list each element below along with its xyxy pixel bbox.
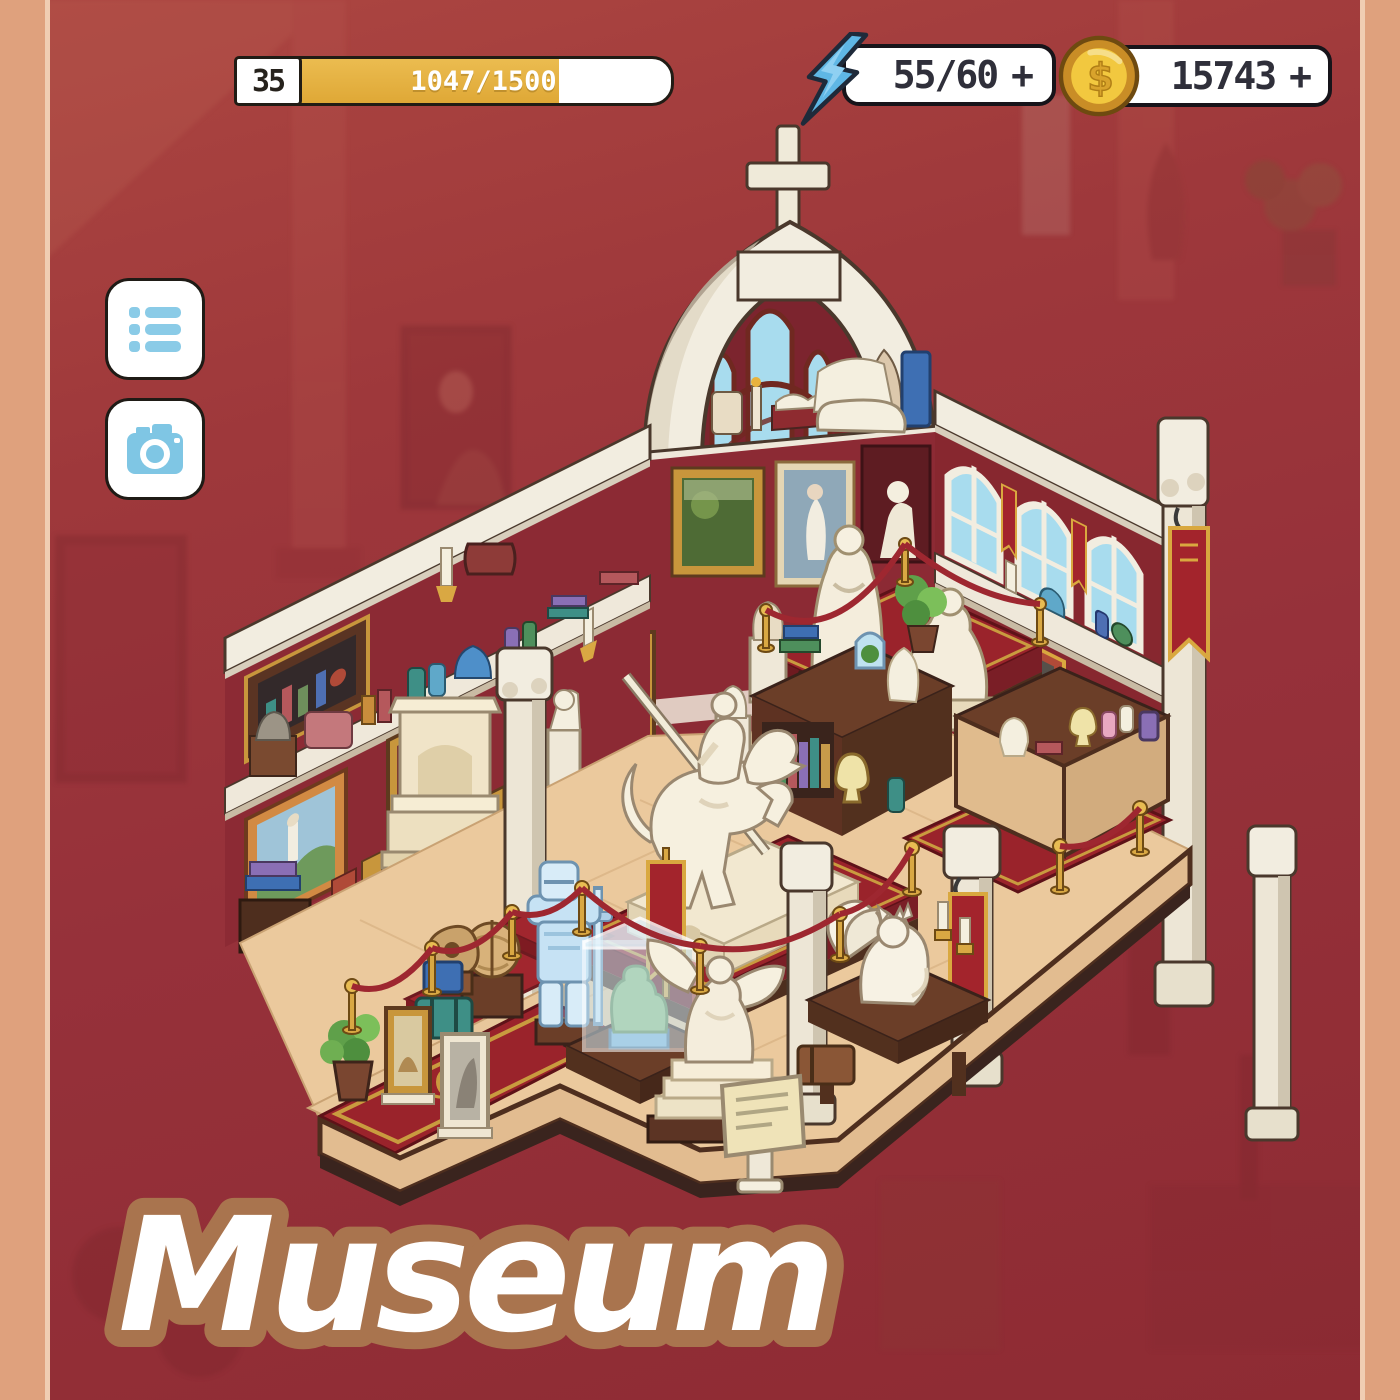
level-badge: 35 <box>234 56 302 106</box>
coin-value: 15743 <box>1171 54 1275 98</box>
alcove-bust <box>862 446 930 562</box>
xp-progress-label: 1047/1500 <box>296 59 671 103</box>
energy-value: 55/60 <box>893 53 997 97</box>
suitcase <box>798 1046 854 1084</box>
game-screen: { "frame": {"border_color": "#DFA17D", "… <box>0 0 1400 1400</box>
marble-column-farright <box>1246 826 1298 1140</box>
level-progress[interactable]: 35 1047/1500 <box>234 56 668 100</box>
white-chaise <box>817 400 905 432</box>
energy-counter[interactable]: 55/60 + <box>842 44 1056 106</box>
xp-progress-bar: 1047/1500 <box>293 56 674 106</box>
task-list-button[interactable] <box>105 278 205 380</box>
add-energy-button[interactable]: + <box>1011 53 1032 97</box>
coin-counter[interactable]: $ 15743 + <box>1092 45 1332 107</box>
landscape-painting <box>672 468 764 576</box>
camera-icon <box>124 421 186 477</box>
add-coins-button[interactable]: + <box>1289 54 1310 98</box>
room-title-text: Museum <box>118 1184 830 1368</box>
camera-button[interactable] <box>105 398 205 500</box>
room-title: Museum <box>90 1168 930 1388</box>
corner-banner <box>1170 508 1208 658</box>
list-icon <box>127 301 183 357</box>
